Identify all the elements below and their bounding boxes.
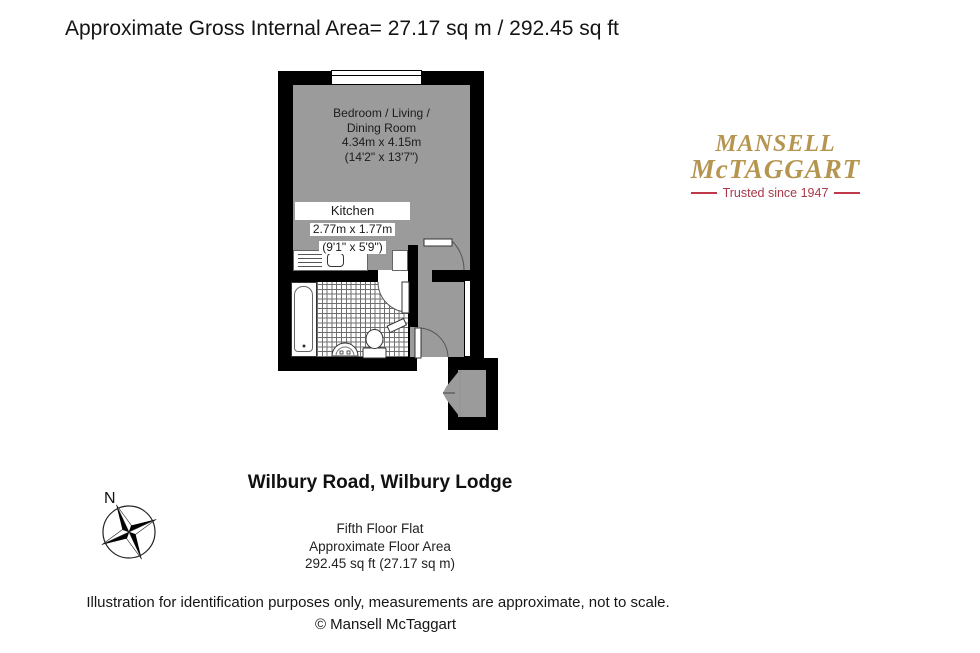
- address-line2: Approximate Floor Area: [180, 538, 580, 556]
- logo-name-line2: McTAGGART: [688, 156, 863, 182]
- address-line1: Fifth Floor Flat: [180, 520, 580, 538]
- wall-internal-left: [293, 270, 380, 282]
- room-dim-metric: 4.34m x 4.15m: [293, 135, 470, 150]
- kitchen-dim-imperial: (9'1" x 5'9"): [319, 241, 385, 254]
- logo-dash-right: [834, 192, 860, 194]
- room-name-line2: Dining Room: [293, 121, 470, 136]
- address-title: Wilbury Road, Wilbury Lodge: [180, 472, 580, 494]
- logo-tagline: Trusted since 1947: [723, 186, 829, 200]
- agency-logo: MANSELL McTAGGART Trusted since 1947: [688, 132, 863, 200]
- doorway-bathroom-gap: [378, 270, 408, 282]
- wall-right: [470, 71, 484, 371]
- kitchen-dim-metric: 2.77m x 1.77m: [310, 223, 395, 236]
- doorway-entrance-gap: [417, 357, 448, 371]
- logo-name-line1: MANSELL: [688, 132, 863, 156]
- vestibule-floor: [458, 370, 486, 417]
- address-details: Fifth Floor Flat Approximate Floor Area …: [180, 520, 580, 573]
- wall-hall-bath: [408, 245, 418, 327]
- room-name-line1: Bedroom / Living /: [293, 106, 470, 121]
- bathroom-tiled-floor: [317, 282, 408, 357]
- disclaimer-text: Illustration for identification purposes…: [58, 594, 698, 611]
- address-line3: 292.45 sq ft (27.17 sq m): [180, 555, 580, 573]
- window-icon: [331, 70, 422, 85]
- room-label-kitchen: Kitchen 2.77m x 1.77m (9'1" x 5'9"): [270, 202, 435, 256]
- floorplan-page: Approximate Gross Internal Area= 27.17 s…: [0, 0, 980, 653]
- room-label-living: Bedroom / Living / Dining Room 4.34m x 4…: [293, 106, 470, 164]
- bathtub-icon: [291, 282, 317, 357]
- logo-dash-left: [691, 192, 717, 194]
- compass-icon: N: [102, 490, 156, 559]
- address-block: Wilbury Road, Wilbury Lodge Fifth Floor …: [180, 472, 580, 573]
- hall-window-icon: [464, 280, 471, 357]
- logo-tagline-row: Trusted since 1947: [688, 186, 863, 200]
- page-title: Approximate Gross Internal Area= 27.17 s…: [65, 17, 619, 41]
- copyright-text: © Mansell McTaggart: [58, 616, 713, 633]
- kitchen-name: Kitchen: [295, 202, 410, 220]
- room-dim-imperial: (14'2" x 13'7"): [293, 150, 470, 165]
- compass-north-label: N: [104, 490, 116, 507]
